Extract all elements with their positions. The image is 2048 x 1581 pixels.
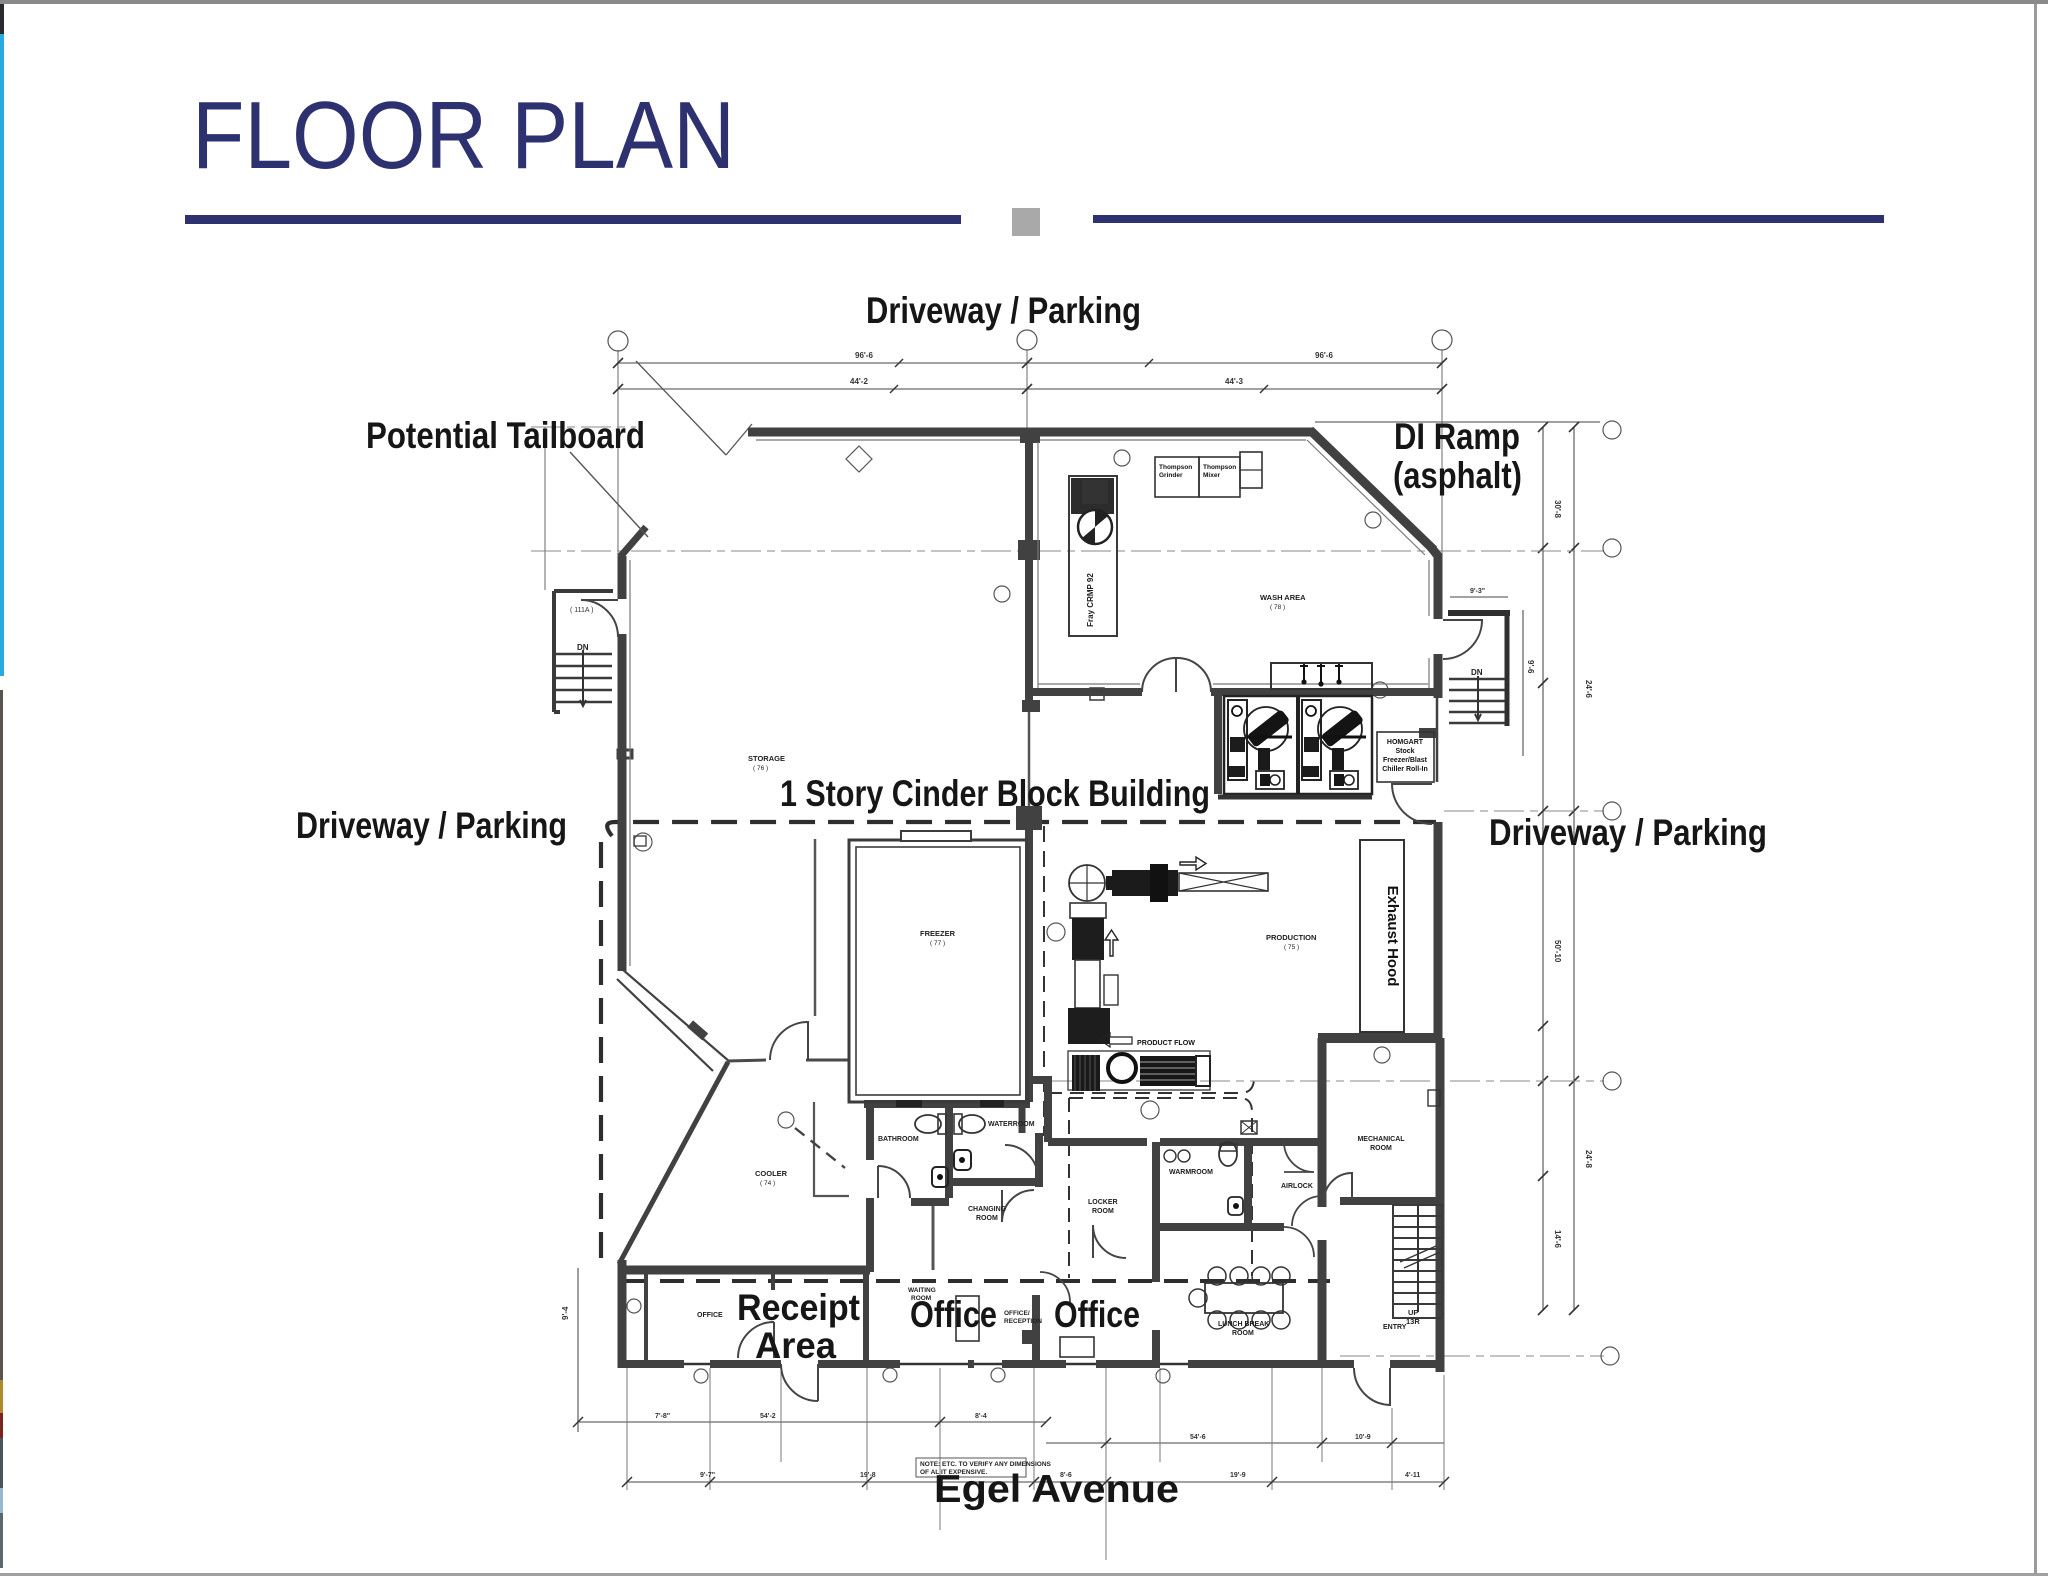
svg-text:DN: DN <box>577 643 589 652</box>
svg-text:4'-11: 4'-11 <box>1405 1472 1420 1479</box>
svg-text:COOLER: COOLER <box>755 1169 788 1178</box>
svg-text:LOCKER: LOCKER <box>1088 1199 1118 1206</box>
svg-text:BATHROOM: BATHROOM <box>878 1136 919 1143</box>
svg-text:WARMROOM: WARMROOM <box>1169 1169 1213 1176</box>
svg-text:Thompson: Thompson <box>1159 464 1192 471</box>
svg-text:7'-8": 7'-8" <box>655 1413 670 1420</box>
svg-text:Stock: Stock <box>1395 748 1414 755</box>
svg-text:OFFICE: OFFICE <box>697 1312 723 1319</box>
svg-text:96'-6: 96'-6 <box>1315 351 1333 360</box>
svg-text:Exhaust Hood: Exhaust Hood <box>1384 886 1401 987</box>
svg-text:PRODUCT FLOW: PRODUCT FLOW <box>1137 1038 1196 1047</box>
svg-text:DI Ramp: DI Ramp <box>1394 416 1520 457</box>
svg-text:Driveway / Parking: Driveway / Parking <box>296 805 567 846</box>
svg-text:Receipt: Receipt <box>737 1287 860 1328</box>
svg-text:MECHANICAL: MECHANICAL <box>1357 1136 1405 1143</box>
svg-text:CHANGING: CHANGING <box>968 1206 1007 1213</box>
svg-text:9'-6: 9'-6 <box>1526 660 1535 674</box>
svg-text:24'-8: 24'-8 <box>1584 1150 1593 1168</box>
svg-text:ROOM: ROOM <box>1370 1145 1392 1152</box>
svg-text:50'-10: 50'-10 <box>1553 940 1562 963</box>
svg-text:54'-2: 54'-2 <box>760 1413 776 1420</box>
svg-text:14'-6: 14'-6 <box>1553 1230 1562 1248</box>
svg-text:Area: Area <box>755 1325 836 1366</box>
svg-text:Freezer/Blast: Freezer/Blast <box>1383 757 1428 764</box>
svg-text:WASH AREA: WASH AREA <box>1260 593 1306 602</box>
svg-text:30'-8: 30'-8 <box>1553 500 1562 518</box>
svg-text:DN: DN <box>1471 668 1483 677</box>
svg-text:8'-6: 8'-6 <box>1060 1472 1072 1479</box>
svg-text:Mixer: Mixer <box>1203 472 1220 479</box>
svg-text:AIRLOCK: AIRLOCK <box>1281 1183 1313 1190</box>
svg-text:44'-2: 44'-2 <box>850 377 868 386</box>
svg-text:( 111A ): ( 111A ) <box>570 607 593 614</box>
svg-text:STORAGE: STORAGE <box>748 754 785 763</box>
svg-text:Egel Avenue: Egel Avenue <box>934 1468 1179 1511</box>
svg-text:9'-7": 9'-7" <box>700 1472 715 1479</box>
svg-text:44'-3: 44'-3 <box>1225 377 1243 386</box>
svg-text:ROOM: ROOM <box>911 1295 931 1302</box>
svg-text:FLOOR PLAN: FLOOR PLAN <box>192 82 735 189</box>
svg-text:9'-3": 9'-3" <box>1470 588 1485 595</box>
svg-text:Grinder: Grinder <box>1159 472 1183 479</box>
svg-text:RECEPTION: RECEPTION <box>1004 1318 1042 1325</box>
svg-text:Thompson: Thompson <box>1203 464 1236 471</box>
svg-text:19'-9: 19'-9 <box>1230 1472 1246 1479</box>
svg-text:WAITING: WAITING <box>908 1287 936 1294</box>
svg-text:96'-6: 96'-6 <box>855 351 873 360</box>
svg-text:LUNCH BREAK: LUNCH BREAK <box>1218 1321 1269 1328</box>
svg-text:10'-9: 10'-9 <box>1355 1434 1371 1441</box>
svg-text:NOTE: ETC. TO VERIFY ANY DIME: NOTE: ETC. TO VERIFY ANY DIMENSIONS <box>920 1461 1052 1468</box>
svg-text:WATERROOM: WATERROOM <box>988 1121 1035 1128</box>
svg-text:OFFICE/: OFFICE/ <box>1004 1310 1030 1317</box>
svg-text:Potential Tailboard: Potential Tailboard <box>366 415 645 456</box>
svg-text:( 78 ): ( 78 ) <box>1270 604 1285 611</box>
svg-text:Fray CRMP 92: Fray CRMP 92 <box>1086 573 1095 627</box>
svg-text:FREEZER: FREEZER <box>920 929 956 938</box>
svg-text:24'-6: 24'-6 <box>1584 680 1593 698</box>
svg-text:( 74 ): ( 74 ) <box>760 1180 775 1187</box>
svg-text:UP: UP <box>1408 1308 1418 1317</box>
svg-text:9'-4: 9'-4 <box>561 1306 570 1320</box>
svg-text:19'-8: 19'-8 <box>860 1472 876 1479</box>
svg-text:( 76 ): ( 76 ) <box>753 765 768 772</box>
svg-text:ENTRY: ENTRY <box>1383 1324 1407 1331</box>
svg-text:Chiller Roll-In: Chiller Roll-In <box>1382 766 1428 773</box>
svg-text:Office: Office <box>1054 1294 1140 1335</box>
svg-text:ROOM: ROOM <box>976 1215 998 1222</box>
svg-text:ROOM: ROOM <box>1232 1330 1254 1337</box>
svg-text:( 77 ): ( 77 ) <box>930 940 945 947</box>
svg-text:ROOM: ROOM <box>1092 1208 1114 1215</box>
svg-text:Driveway / Parking: Driveway / Parking <box>866 290 1141 331</box>
svg-text:1 Story Cinder Block Building: 1 Story Cinder Block Building <box>780 773 1210 814</box>
svg-text:PRODUCTION: PRODUCTION <box>1266 933 1316 942</box>
svg-text:54'-6: 54'-6 <box>1190 1434 1206 1441</box>
svg-text:8'-4: 8'-4 <box>975 1413 987 1420</box>
svg-text:Driveway / Parking: Driveway / Parking <box>1489 812 1767 853</box>
svg-text:HOMGART: HOMGART <box>1387 739 1424 746</box>
svg-text:13R: 13R <box>1406 1317 1420 1326</box>
svg-text:(asphalt): (asphalt) <box>1393 455 1522 496</box>
svg-text:( 75 ): ( 75 ) <box>1284 944 1299 951</box>
